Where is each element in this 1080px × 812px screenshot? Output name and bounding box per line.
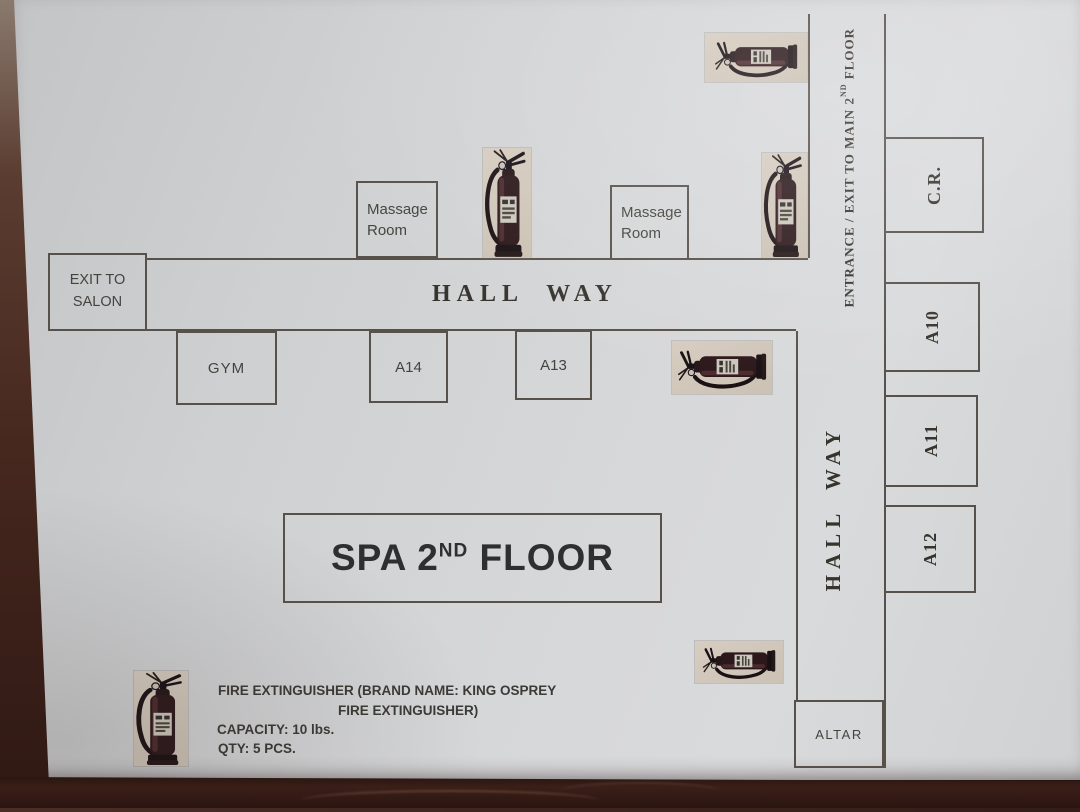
corridor-right-wall [884, 14, 886, 768]
room-cr: C.R. [884, 137, 984, 233]
entrance-exit-label: ENTRANCE / EXIT TO MAIN 2ND FLOOR [834, 34, 862, 302]
corridor-left-wall-upper [808, 14, 810, 258]
a11-label: A11 [921, 424, 942, 457]
gym-label: GYM [208, 360, 245, 377]
wood-scratch-mark [300, 790, 600, 812]
room-massage-1: Massage Room [356, 181, 438, 258]
fire-extinguisher-marker-hallway-center [483, 148, 531, 258]
room-a12: A12 [884, 505, 976, 593]
exit-to-salon-label-line2: SALON [70, 292, 126, 314]
entrance-exit-label-text: ENTRANCE / EXIT TO MAIN 2ND FLOOR [839, 28, 857, 307]
fire-extinguisher-icon [483, 148, 531, 258]
legend-fire-extinguisher-marker [134, 671, 188, 766]
a12-label: A12 [920, 532, 941, 566]
floor-plan-paper: EXIT TO SALON HALL WAY Massage Room Mass… [0, 0, 1080, 780]
hallway-vertical-label-text: HALL WAY [821, 425, 846, 591]
altar-label: ALTAR [815, 727, 862, 742]
room-gym: GYM [176, 331, 277, 405]
spa-title: SPA 2ND FLOOR [331, 537, 614, 579]
entrance-label-text: ENTRANCE / EXIT TO MAIN 2 [841, 97, 856, 307]
fire-extinguisher-marker-hallway-right [762, 153, 807, 258]
spa-title-text: SPA 2 [331, 537, 439, 578]
room-a11: A11 [884, 395, 978, 487]
entrance-label-superscript: ND [839, 84, 848, 98]
wood-scratch-mark [560, 782, 720, 800]
spa-title-box: SPA 2ND FLOOR [283, 513, 662, 603]
fire-extinguisher-marker-mid [672, 341, 772, 394]
room-a14: A14 [369, 331, 448, 403]
room-massage-2: Massage Room [610, 185, 689, 260]
exit-to-salon-label-line1: EXIT TO [70, 270, 126, 292]
spa-title-superscript: ND [439, 541, 468, 562]
fire-extinguisher-icon [762, 153, 807, 258]
fire-extinguisher-marker-bottom [695, 641, 783, 683]
corridor-left-wall-lower [796, 331, 798, 701]
massage-room-1-label-line2: Room [367, 220, 428, 241]
fire-extinguisher-icon [676, 345, 768, 390]
legend-line2: FIRE EXTINGUISHER) [338, 703, 478, 718]
fire-extinguisher-marker-entrance [705, 33, 807, 82]
spa-title-text-rest: FLOOR [468, 537, 614, 578]
room-exit-to-salon: EXIT TO SALON [48, 253, 147, 331]
legend-capacity: CAPACITY: 10 lbs. [217, 722, 334, 737]
fire-extinguisher-icon [709, 37, 803, 79]
fire-extinguisher-icon [699, 644, 779, 681]
entrance-label-text-rest: FLOOR [841, 28, 856, 83]
massage-room-2-label-line2: Room [621, 223, 682, 244]
a10-label: A10 [922, 310, 943, 344]
hallway-top-wall [147, 258, 808, 260]
a13-label: A13 [540, 357, 567, 374]
room-altar: ALTAR [794, 700, 884, 768]
room-a13: A13 [515, 330, 592, 400]
legend-quantity: QTY: 5 PCS. [218, 741, 296, 756]
massage-room-1-label-line1: Massage [367, 199, 428, 220]
hallway-vertical-label: HALL WAY [818, 410, 848, 606]
fire-extinguisher-icon [134, 671, 188, 766]
legend-line1: FIRE EXTINGUISHER (BRAND NAME: KING OSPR… [218, 683, 556, 698]
hallway-horizontal-label: HALL WAY [420, 281, 630, 308]
room-a10: A10 [884, 282, 980, 372]
a14-label: A14 [395, 359, 422, 376]
cr-label: C.R. [924, 166, 945, 205]
massage-room-2-label-line1: Massage [621, 202, 682, 223]
